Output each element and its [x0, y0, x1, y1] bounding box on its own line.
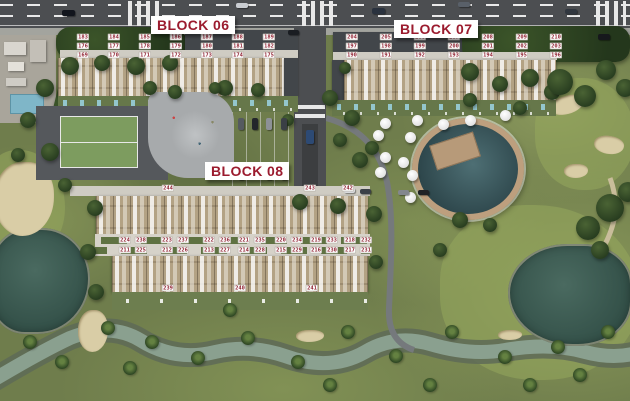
- unit-label: 184: [108, 34, 121, 41]
- unit-label: 231: [360, 247, 373, 254]
- unit-label: 199: [414, 43, 427, 50]
- unit-label: 223: [161, 237, 174, 244]
- unit-label: 240: [234, 285, 247, 292]
- unit-labels-layer: 1831841851861871881891761771781791801811…: [0, 0, 630, 401]
- unit-label: 200: [448, 43, 461, 50]
- unit-label: 215: [275, 247, 288, 254]
- unit-label: 229: [291, 247, 304, 254]
- unit-label: 171: [139, 52, 152, 59]
- unit-label: 221: [238, 237, 251, 244]
- unit-label: 198: [380, 43, 393, 50]
- unit-label: 216: [310, 247, 323, 254]
- unit-label: 227: [219, 247, 232, 254]
- unit-label: 176: [77, 43, 90, 50]
- site-plan-canvas: 1831841851861871881891761771781791801811…: [0, 0, 630, 401]
- block-06-label: BLOCK 06: [151, 16, 235, 34]
- block-08-label: BLOCK 08: [205, 162, 289, 180]
- unit-label: 169: [77, 52, 90, 59]
- unit-label: 210: [550, 34, 563, 41]
- unit-label: 219: [310, 237, 323, 244]
- unit-label: 201: [482, 43, 495, 50]
- unit-label: 242: [342, 185, 355, 192]
- unit-label: 213: [203, 247, 216, 254]
- unit-label: 235: [254, 237, 267, 244]
- unit-label: 177: [108, 43, 121, 50]
- unit-label: 174: [232, 52, 245, 59]
- unit-label: 186: [170, 34, 183, 41]
- unit-label: 202: [516, 43, 529, 50]
- unit-label: 185: [139, 34, 152, 41]
- unit-label: 194: [482, 52, 495, 59]
- unit-label: 180: [201, 43, 214, 50]
- unit-label: 187: [201, 34, 214, 41]
- unit-label: 196: [550, 52, 563, 59]
- unit-label: 237: [177, 237, 190, 244]
- unit-label: 189: [263, 34, 276, 41]
- unit-label: 193: [448, 52, 461, 59]
- unit-label: 220: [275, 237, 288, 244]
- unit-label: 233: [326, 237, 339, 244]
- unit-label: 188: [232, 34, 245, 41]
- unit-label: 225: [135, 247, 148, 254]
- block-07-label: BLOCK 07: [394, 20, 478, 38]
- unit-label: 230: [326, 247, 339, 254]
- unit-label: 178: [139, 43, 152, 50]
- unit-label: 192: [414, 52, 427, 59]
- unit-label: 224: [119, 237, 132, 244]
- unit-label: 197: [346, 43, 359, 50]
- unit-label: 239: [162, 285, 175, 292]
- unit-label: 243: [304, 185, 317, 192]
- unit-label: 205: [380, 34, 393, 41]
- unit-label: 212: [161, 247, 174, 254]
- unit-label: 244: [162, 185, 175, 192]
- unit-label: 191: [380, 52, 393, 59]
- unit-label: 214: [238, 247, 251, 254]
- unit-label: 181: [232, 43, 245, 50]
- unit-label: 183: [77, 34, 90, 41]
- unit-label: 208: [482, 34, 495, 41]
- unit-label: 172: [170, 52, 183, 59]
- unit-label: 211: [119, 247, 132, 254]
- unit-label: 195: [516, 52, 529, 59]
- unit-label: 175: [263, 52, 276, 59]
- unit-label: 179: [170, 43, 183, 50]
- unit-label: 236: [219, 237, 232, 244]
- unit-label: 234: [291, 237, 304, 244]
- unit-label: 217: [344, 247, 357, 254]
- unit-label: 209: [516, 34, 529, 41]
- unit-label: 228: [254, 247, 267, 254]
- unit-label: 218: [344, 237, 357, 244]
- unit-label: 226: [177, 247, 190, 254]
- unit-label: 182: [263, 43, 276, 50]
- unit-label: 222: [203, 237, 216, 244]
- unit-label: 190: [346, 52, 359, 59]
- unit-label: 232: [360, 237, 373, 244]
- unit-label: 170: [108, 52, 121, 59]
- unit-label: 203: [550, 43, 563, 50]
- unit-label: 241: [306, 285, 319, 292]
- unit-label: 238: [135, 237, 148, 244]
- unit-label: 173: [201, 52, 214, 59]
- unit-label: 204: [346, 34, 359, 41]
